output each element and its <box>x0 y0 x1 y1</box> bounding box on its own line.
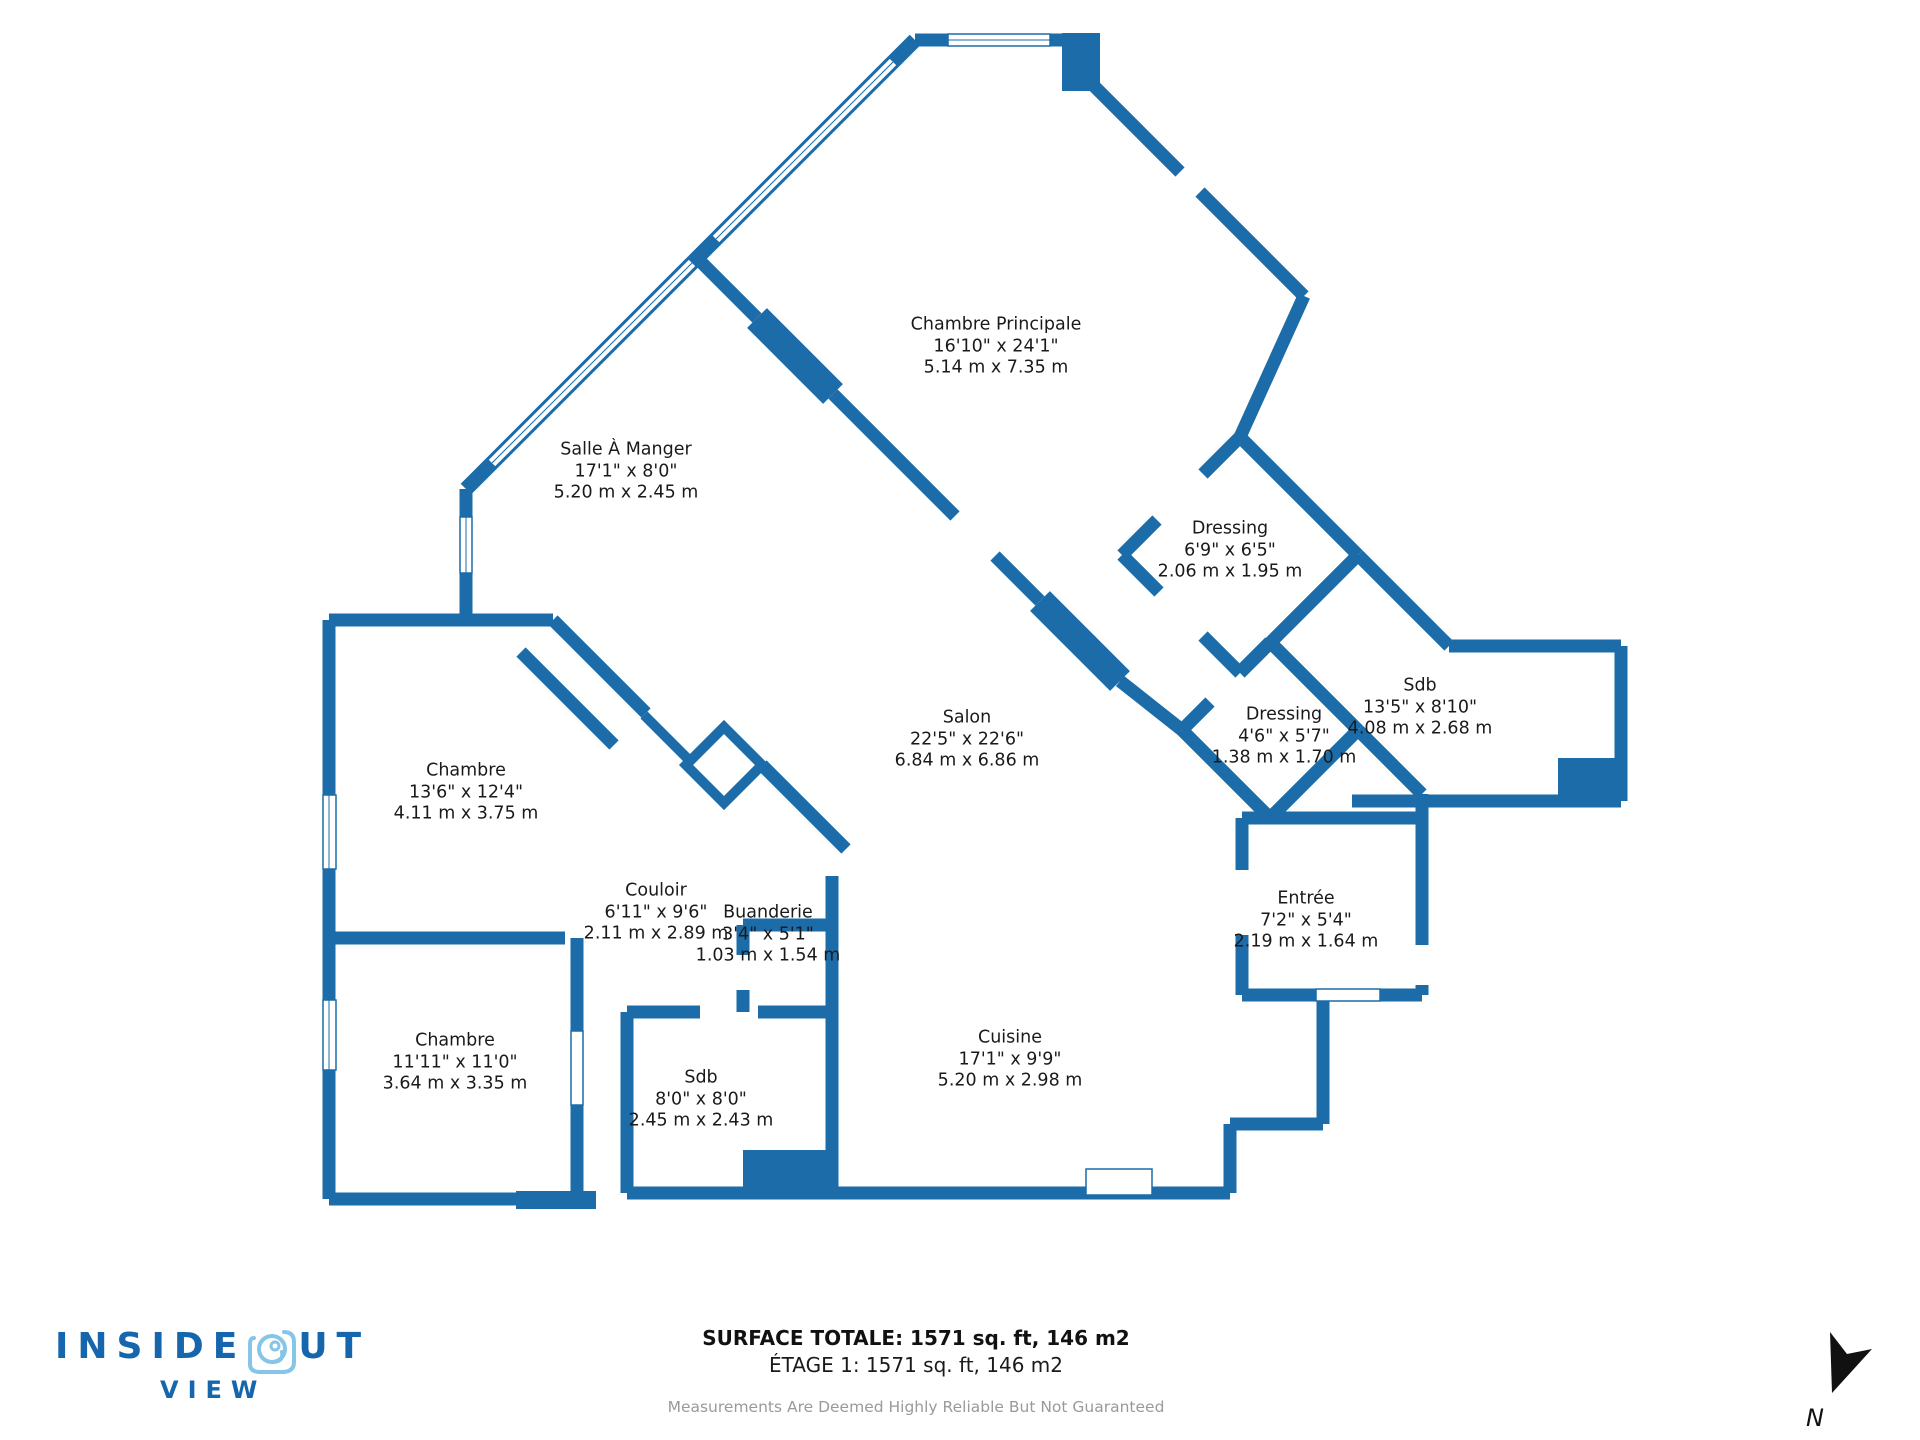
room-metric: 4.11 m x 3.75 m <box>394 804 539 826</box>
room-name: Chambre Principale <box>911 314 1082 336</box>
room-label-buanderie: Buanderie 3'4" x 5'1" 1.03 m x 1.54 m <box>696 902 841 967</box>
room-imperial: 17'1" x 9'9" <box>938 1049 1083 1071</box>
room-imperial: 17'1" x 8'0" <box>554 461 699 483</box>
room-name: Sdb <box>629 1067 774 1089</box>
floor-plan-page: { "colors": { "wall": "#1B6CA8", "window… <box>0 0 1920 1440</box>
room-label-entree: Entrée 7'2" x 5'4" 2.19 m x 1.64 m <box>1234 888 1379 953</box>
logo-main-row: INSIDE UT <box>55 1318 370 1374</box>
room-name: Cuisine <box>938 1027 1083 1049</box>
room-imperial: 7'2" x 5'4" <box>1234 910 1379 932</box>
room-label-cuisine: Cuisine 17'1" x 9'9" 5.20 m x 2.98 m <box>938 1027 1083 1092</box>
north-label: N <box>1806 1404 1824 1432</box>
room-label-salon: Salon 22'5" x 22'6" 6.84 m x 6.86 m <box>895 707 1040 772</box>
room-label-salle-a-manger: Salle À Manger 17'1" x 8'0" 5.20 m x 2.4… <box>554 439 699 504</box>
room-imperial: 6'9" x 6'5" <box>1158 540 1303 562</box>
room-label-chambre-2: Chambre 11'11" x 11'0" 3.64 m x 3.35 m <box>383 1030 528 1095</box>
room-metric: 2.06 m x 1.95 m <box>1158 562 1303 584</box>
room-name: Chambre <box>383 1030 528 1052</box>
room-metric: 2.19 m x 1.64 m <box>1234 932 1379 954</box>
room-imperial: 13'6" x 12'4" <box>394 782 539 804</box>
room-name: Salon <box>895 707 1040 729</box>
logo-part2: UT <box>298 1326 370 1367</box>
disclaimer-text: Measurements Are Deemed Highly Reliable … <box>668 1398 1165 1416</box>
room-name: Dressing <box>1212 704 1357 726</box>
room-imperial: 3'4" x 5'1" <box>696 924 841 946</box>
wall-segments <box>329 40 1621 1199</box>
footer: SURFACE TOTALE: 1571 sq. ft, 146 m2 ÉTAG… <box>668 1326 1165 1416</box>
compass: N <box>1800 1322 1900 1432</box>
room-metric: 5.20 m x 2.45 m <box>554 483 699 505</box>
closet-walls <box>644 715 762 803</box>
room-imperial: 8'0" x 8'0" <box>629 1089 774 1111</box>
room-imperial: 22'5" x 22'6" <box>895 729 1040 751</box>
room-name: Sdb <box>1348 675 1493 697</box>
room-metric: 1.03 m x 1.54 m <box>696 946 841 968</box>
etage-text: ÉTAGE 1: 1571 sq. ft, 146 m2 <box>668 1353 1165 1377</box>
surface-total-text: SURFACE TOTALE: 1571 sq. ft, 146 m2 <box>668 1326 1165 1350</box>
room-metric: 4.08 m x 2.68 m <box>1348 719 1493 741</box>
room-imperial: 13'5" x 8'10" <box>1348 697 1493 719</box>
room-metric: 1.38 m x 1.70 m <box>1212 748 1357 770</box>
room-name: Dressing <box>1158 518 1303 540</box>
room-label-dressing-2: Dressing 4'6" x 5'7" 1.38 m x 1.70 m <box>1212 704 1357 769</box>
room-name: Salle À Manger <box>554 439 699 461</box>
room-label-chambre-1: Chambre 13'6" x 12'4" 4.11 m x 3.75 m <box>394 760 539 825</box>
room-label-dressing-1: Dressing 6'9" x 6'5" 2.06 m x 1.95 m <box>1158 518 1303 583</box>
room-name: Couloir <box>584 880 729 902</box>
room-label-sdb-right: Sdb 13'5" x 8'10" 4.08 m x 2.68 m <box>1348 675 1493 740</box>
room-metric: 5.20 m x 2.98 m <box>938 1071 1083 1093</box>
room-name: Entrée <box>1234 888 1379 910</box>
room-imperial: 16'10" x 24'1" <box>911 336 1082 358</box>
room-imperial: 11'11" x 11'0" <box>383 1052 528 1074</box>
room-label-sdb-bottom: Sdb 8'0" x 8'0" 2.45 m x 2.43 m <box>629 1067 774 1132</box>
room-metric: 3.64 m x 3.35 m <box>383 1074 528 1096</box>
room-name: Chambre <box>394 760 539 782</box>
room-metric: 6.84 m x 6.86 m <box>895 751 1040 773</box>
room-metric: 2.45 m x 2.43 m <box>629 1111 774 1133</box>
room-metric: 5.14 m x 7.35 m <box>911 358 1082 380</box>
room-imperial: 4'6" x 5'7" <box>1212 726 1357 748</box>
room-name: Buanderie <box>696 902 841 924</box>
insideout-view-logo: INSIDE UT VIEW <box>55 1318 370 1404</box>
logo-part1: INSIDE <box>55 1326 246 1367</box>
room-label-chambre-principale: Chambre Principale 16'10" x 24'1" 5.14 m… <box>911 314 1082 379</box>
logo-sub-text: VIEW <box>160 1376 370 1404</box>
camera-lens-icon <box>244 1324 300 1380</box>
